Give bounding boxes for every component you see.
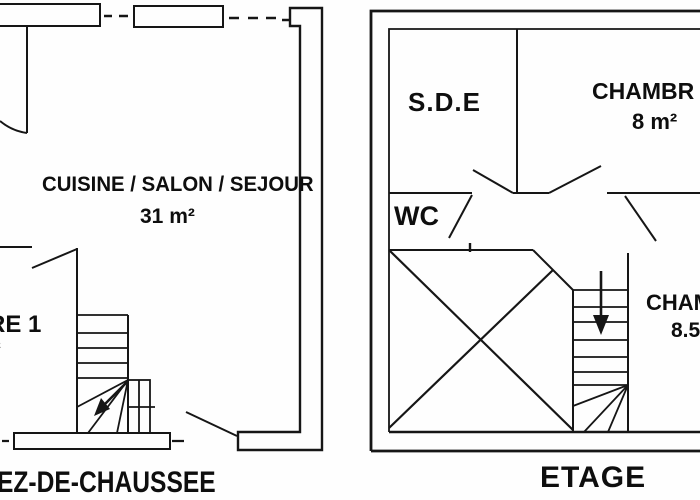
floorplan-drawing <box>0 0 700 500</box>
living-room-area: 31 m² <box>140 206 195 228</box>
shower-room-label: S.D.E <box>408 89 481 116</box>
exterior-wall <box>238 8 322 450</box>
exterior-wall-outline <box>371 11 700 451</box>
bedroom2-area: 8 m² <box>632 110 677 133</box>
bedroom3-area-fragment: 8.5 <box>671 320 700 342</box>
door-swing-icon <box>0 26 27 133</box>
wc-bottom-wall <box>389 243 573 290</box>
bedroom3-label: CHAM <box>646 291 700 314</box>
wc-door-swing-icon <box>449 195 472 238</box>
stair-void-cross <box>389 250 573 430</box>
entrance-door-swing-icon <box>186 412 237 436</box>
upper-floor-plan <box>371 11 700 451</box>
stairs-down-arrow-icon <box>593 271 609 335</box>
bedroom1-label: RE 1 <box>0 312 41 337</box>
bottom-wall <box>14 433 170 449</box>
bedroom1-area-fragment: ² <box>0 340 1 358</box>
staircase <box>77 315 155 433</box>
living-room-label: CUISINE / SALON / SEJOUR <box>42 174 314 196</box>
ground-floor-title: EZ-DE-CHAUSSEE <box>0 467 216 499</box>
bedroom1-door-swing-icon <box>32 249 77 268</box>
sde-door-swing-icon <box>473 170 513 193</box>
upper-floor-title: ETAGE <box>540 462 646 494</box>
floor-plan-page: CUISINE / SALON / SEJOUR 31 m² RE 1 ² EZ… <box>0 0 700 500</box>
bedroom3-door-swing-icon <box>625 196 656 241</box>
window-dashed-axis <box>104 16 290 20</box>
interior-wall <box>0 247 77 433</box>
bedroom2-label: CHAMBR <box>592 79 694 103</box>
wc-label: WC <box>394 202 439 230</box>
bedroom2-door-swing-icon <box>549 166 601 193</box>
